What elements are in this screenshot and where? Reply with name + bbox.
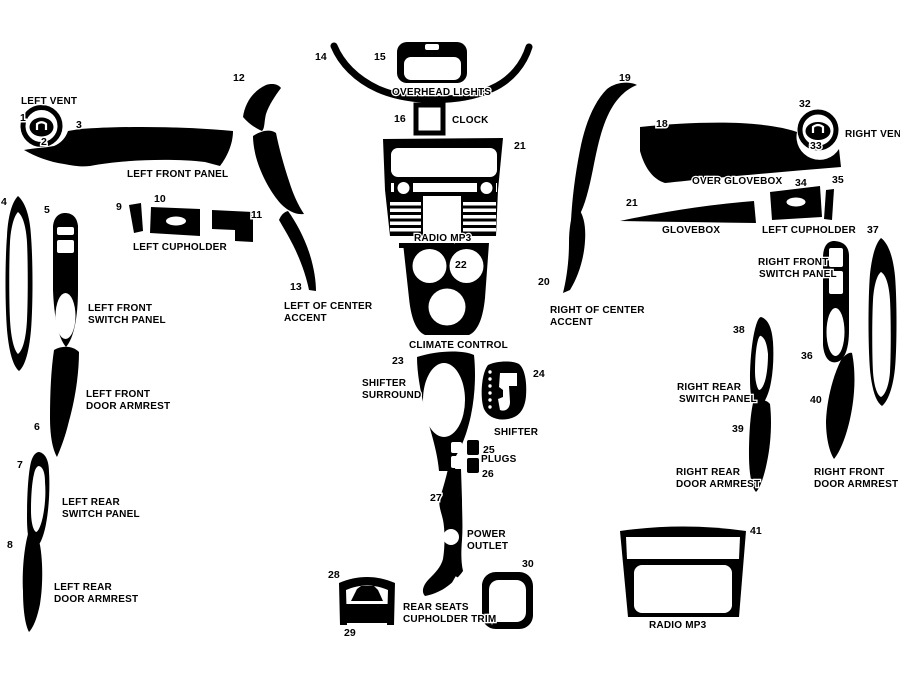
part-label: LEFT CUPHOLDER: [133, 242, 227, 253]
part-label: RIGHT FRONT: [814, 467, 885, 478]
plug-cutout: [451, 442, 462, 453]
part-number: 36: [801, 350, 813, 362]
part-label: SWITCH PANEL: [62, 509, 140, 520]
part-label: LEFT REAR: [62, 497, 120, 508]
part-number: 14: [315, 51, 327, 63]
part-label: LEFT FRONT PANEL: [127, 169, 228, 180]
part-left-cupholder-end: [129, 203, 143, 233]
part-right-door-trim: [869, 238, 897, 406]
part-number: 21: [626, 197, 638, 209]
part-left-pillar-blade: [253, 131, 304, 215]
part-label: CLOCK: [452, 115, 489, 126]
part-label: RIGHT OF CENTER: [550, 305, 645, 316]
diagram-canvas: LEFT VENTLEFT FRONT PANELLEFT CUPHOLDERL…: [0, 0, 900, 675]
part-number: 4: [1, 196, 7, 208]
part-label: LEFT VENT: [21, 96, 77, 107]
part-label: RIGHT REAR: [676, 467, 741, 478]
part-rear-cupholder-insert: [343, 604, 388, 623]
handle-cutout: [56, 293, 76, 339]
part-number: 25: [483, 444, 495, 456]
part-label: DOOR ARMREST: [54, 594, 138, 605]
part-number: 12: [233, 72, 245, 84]
part-label: SWITCH PANEL: [759, 269, 837, 280]
part-glovebox: [620, 201, 756, 223]
rear-radio-main-cutout: [634, 565, 732, 613]
part-number: 23: [392, 355, 404, 367]
part-left-pillar-top: [243, 84, 281, 131]
part-number: 8: [7, 539, 13, 551]
part-number: 26: [482, 468, 494, 480]
part-number: 22: [455, 259, 467, 271]
part-number: 18: [656, 118, 668, 130]
shifter-boot-cutout: [423, 363, 465, 437]
part-right-front-door-armrest: [826, 353, 854, 459]
switch-cutout: [57, 227, 74, 235]
lights-notch: [425, 44, 439, 50]
part-number: 32: [799, 98, 811, 110]
part-plug-upper: [467, 440, 479, 455]
part-number: 27: [430, 492, 442, 504]
part-number: 1: [20, 112, 26, 124]
part-label: DOOR ARMREST: [814, 479, 898, 490]
outlet-cutout: [443, 529, 459, 545]
part-number: 38: [733, 324, 745, 336]
part-label: RADIO MP3: [414, 233, 472, 244]
switch-cutout: [57, 240, 74, 253]
part-right-of-center-accent: [563, 208, 585, 293]
part-left-rear-door-armrest: [23, 534, 43, 632]
part-label: OVER GLOVEBOX: [692, 176, 783, 187]
part-clock-bezel: [416, 105, 443, 133]
climate-dial-cutout: [413, 249, 447, 283]
part-number: 7: [17, 459, 23, 471]
part-label: DOOR ARMREST: [86, 401, 170, 412]
handle-cutout: [827, 308, 845, 356]
part-number: 2: [41, 136, 47, 148]
part-label: CUPHOLDER TRIM: [403, 614, 496, 625]
part-number: 21: [514, 140, 526, 152]
part-label: LEFT CUPHOLDER: [762, 225, 856, 236]
part-label: SHIFTER: [362, 378, 407, 389]
part-label: LEFT REAR: [54, 582, 112, 593]
part-label: SWITCH PANEL: [679, 394, 757, 405]
part-number: 3: [76, 119, 82, 131]
part-number: 28: [328, 569, 340, 581]
part-label: POWER: [467, 529, 506, 540]
part-number: 40: [810, 394, 822, 406]
part-label: LEFT FRONT: [86, 389, 150, 400]
part-left-door-trim: [6, 196, 33, 371]
part-number: 11: [251, 209, 262, 221]
part-rear-cupholder-hump: [351, 586, 383, 601]
part-label: REAR SEATS: [403, 602, 469, 613]
part-number: 39: [732, 423, 744, 435]
lights-lens-cutout: [404, 57, 461, 80]
cupholder-slot: [166, 217, 186, 226]
part-number: 16: [394, 113, 406, 125]
part-number: 6: [34, 421, 40, 433]
radio-knob-cutout: [481, 182, 493, 194]
part-left-front-door-armrest: [50, 347, 79, 457]
part-number: 13: [290, 281, 302, 293]
part-label: DOOR ARMREST: [676, 479, 760, 490]
part-number: 35: [832, 174, 844, 186]
part-number: 37: [867, 224, 879, 236]
switch-cutout: [829, 248, 843, 267]
part-number: 34: [795, 177, 807, 189]
radio-center-cutout: [423, 196, 461, 236]
part-label: RADIO MP3: [649, 620, 707, 631]
part-label: RIGHT REAR: [677, 382, 742, 393]
part-number: 29: [344, 627, 356, 639]
radio-knob-cutout: [398, 182, 410, 194]
part-label: LEFT OF CENTER: [284, 301, 373, 312]
part-number: 10: [154, 193, 166, 205]
part-right-side-cupholder-end: [824, 189, 834, 220]
part-label: ACCENT: [550, 317, 593, 328]
dash-kit-diagram: LEFT VENTLEFT FRONT PANELLEFT CUPHOLDERL…: [0, 0, 900, 675]
part-label: SURROUND: [362, 390, 421, 401]
part-number: 30: [522, 558, 534, 570]
part-number: 5: [44, 204, 50, 216]
part-number: 19: [619, 72, 631, 84]
plug-cutout: [451, 456, 462, 468]
part-label: ACCENT: [284, 313, 327, 324]
part-left-vent-insert: [30, 118, 54, 137]
part-label: RIGHT FRONT: [758, 257, 829, 268]
part-label: OUTLET: [467, 541, 508, 552]
part-label: SHIFTER: [494, 427, 539, 438]
part-left-of-center-accent: [279, 211, 316, 291]
part-number: 15: [374, 51, 386, 63]
part-number: 41: [750, 525, 762, 537]
part-label: SWITCH PANEL: [88, 315, 166, 326]
part-label: GLOVEBOX: [662, 225, 720, 236]
cupholder-slot: [787, 198, 806, 207]
part-label: OVERHEAD LIGHTS: [392, 87, 491, 98]
part-number: 9: [116, 201, 122, 213]
part-label: RIGHT VENT: [845, 129, 900, 140]
part-plug-lower: [467, 458, 479, 473]
part-number: 20: [538, 276, 550, 288]
climate-dial-cutout: [429, 289, 466, 326]
rear-radio-top-cutout: [626, 537, 740, 559]
part-left-cupholder-side: [212, 210, 253, 242]
part-label: LEFT FRONT: [88, 303, 152, 314]
radio-display-cutout: [391, 148, 497, 177]
part-number: 33: [810, 140, 822, 152]
part-number: 24: [533, 368, 545, 380]
part-label: CLIMATE CONTROL: [409, 340, 508, 351]
